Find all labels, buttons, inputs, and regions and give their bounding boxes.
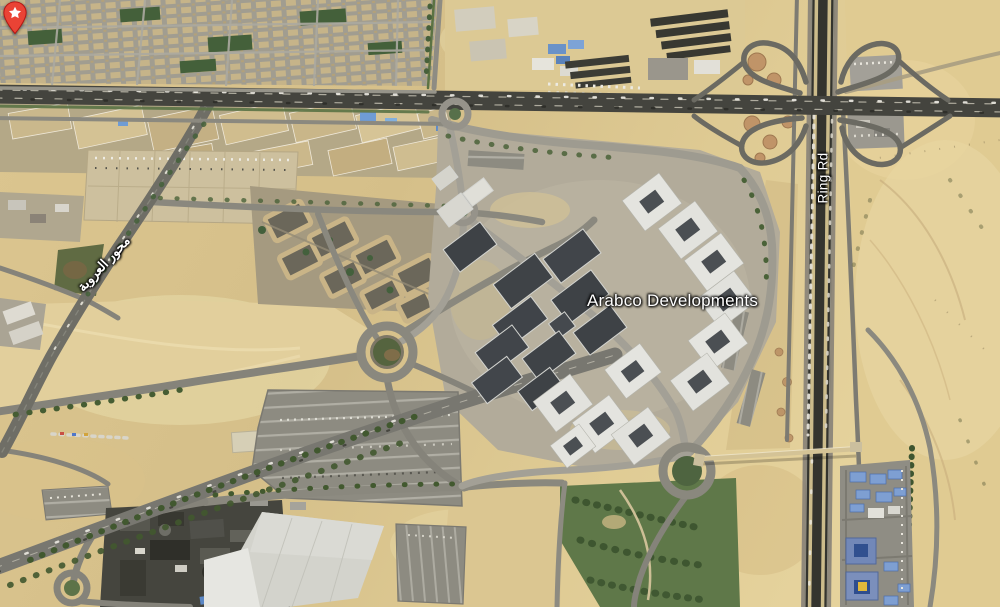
place-label[interactable]: Arabco Developments bbox=[587, 291, 758, 311]
map-canvas[interactable]: Arabco Developments Ring Rd محور العروبة bbox=[0, 0, 1000, 607]
ring-road bbox=[805, 0, 834, 607]
depot-facility bbox=[840, 460, 914, 607]
road-label-ring-rd: Ring Rd bbox=[816, 153, 831, 204]
satellite-imagery bbox=[0, 0, 1000, 607]
place-marker-pin[interactable] bbox=[0, 0, 30, 36]
